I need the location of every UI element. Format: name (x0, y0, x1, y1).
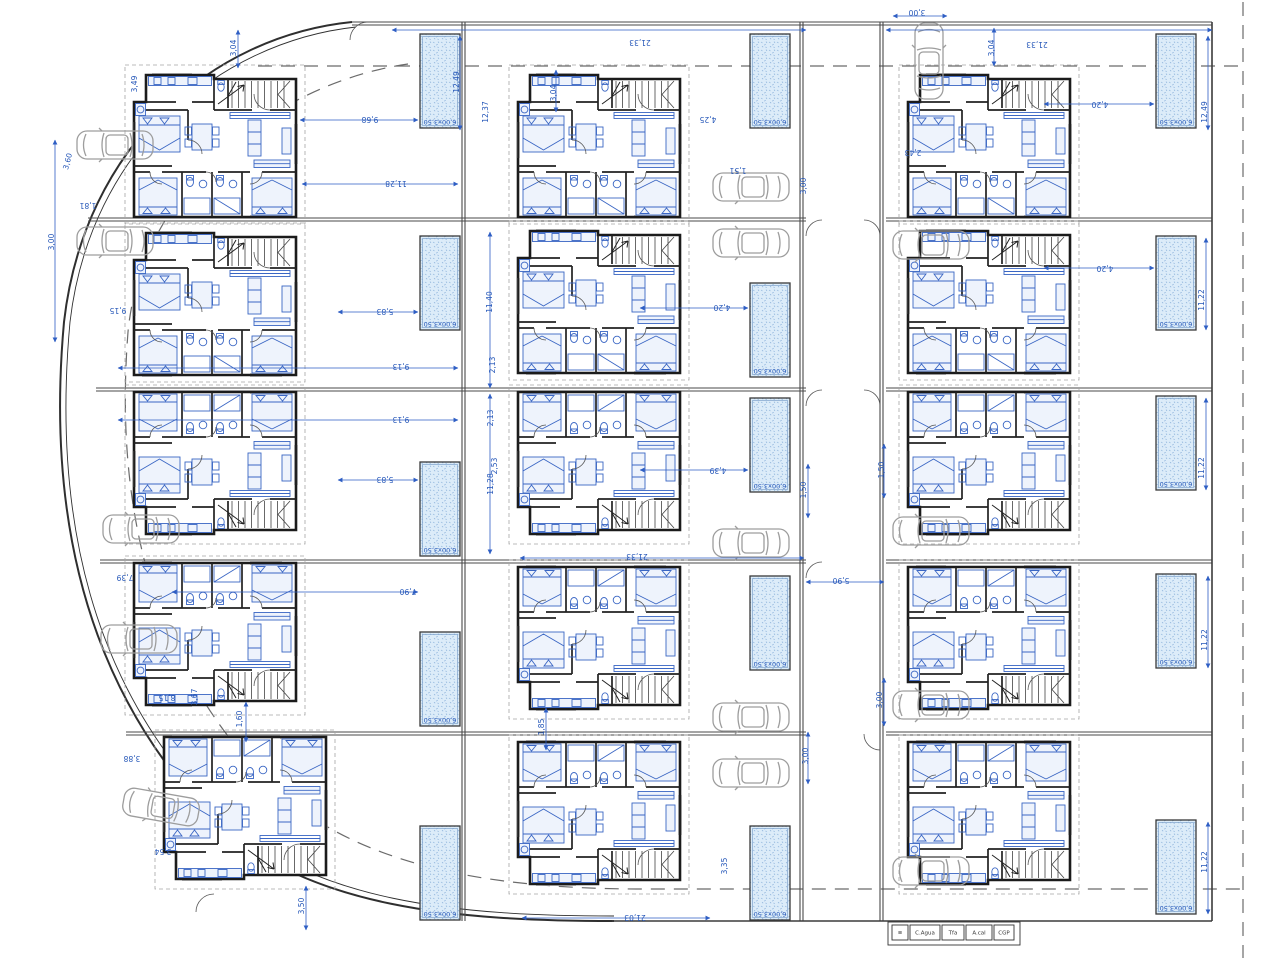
dimension-label: 3,88 (123, 754, 140, 763)
pool-size-label: 6,00x3,50 (1160, 904, 1193, 912)
dimension-label: 2,13 (486, 409, 495, 426)
dimension-label: 21,33 (629, 38, 651, 47)
dimension-label: 3,04 (229, 39, 238, 56)
dimension-label: 11,22 (1197, 457, 1206, 479)
dimension-label: 9,13 (392, 362, 409, 371)
pool-size-label: 6,00x3,50 (754, 482, 787, 490)
pool-size-label: 6,00x3,50 (754, 118, 787, 126)
pool-size-label: 6,00x3,50 (424, 320, 457, 328)
dimension-label: 11,22 (1200, 629, 1209, 651)
dimension-label: 3,54 (154, 847, 171, 856)
legend-label: ≡ (898, 931, 903, 937)
pool (420, 236, 460, 330)
dimension-label: 1,51 (729, 166, 746, 175)
car-icon (713, 700, 789, 734)
dimension-label: 2,13 (488, 356, 497, 373)
villa-floorplan (163, 736, 328, 881)
villa-floorplan (133, 391, 298, 536)
pool (420, 826, 460, 920)
dimension-label: 5,83 (376, 475, 393, 484)
dimension-label: 3,60 (61, 152, 74, 171)
dimension-label: 11,28 (385, 179, 407, 188)
pool-size-label: 6,00x3,50 (1160, 118, 1193, 126)
dimension-label: 3,00 (875, 691, 884, 708)
dimension-label: 1,85 (537, 718, 546, 735)
gate-arc (806, 390, 822, 406)
pool-size-label: 6,00x3,50 (1160, 480, 1193, 488)
dimension-label: 3,49 (130, 75, 139, 92)
dimension-label: 4,20 (713, 303, 730, 312)
villa-floorplan (517, 566, 682, 711)
legend-label: Tfa (948, 931, 958, 937)
legend-label: C.Agua (915, 931, 935, 937)
dimension-label: 11,28 (486, 473, 495, 495)
dimension-label: 3,00 (908, 8, 925, 17)
pool (750, 398, 790, 492)
gate-arc (864, 734, 880, 750)
pool-size-label: 6,00x3,50 (754, 367, 787, 375)
dimension-label: 11,22 (1197, 289, 1206, 311)
dimension-label: 3,00 (801, 747, 810, 764)
dimension-label: 5,90 (832, 576, 849, 585)
car-icon (713, 170, 789, 204)
pool-size-label: 6,00x3,50 (754, 660, 787, 668)
pool (750, 34, 790, 128)
villa-floorplan (133, 562, 298, 707)
dimension-label: 21,33 (626, 552, 648, 561)
gate-arc (864, 220, 880, 236)
site-plan-svg: 6,00x3,506,00x3,506,00x3,506,00x3,506,00… (0, 0, 1280, 960)
villa-floorplan (907, 391, 1072, 536)
dimension-label: 4,20 (1091, 100, 1108, 109)
dimension-label: 9,68 (361, 115, 378, 124)
villa-floorplan (133, 232, 298, 377)
villa-floorplan (517, 230, 682, 375)
blueprint-canvas: 6,00x3,506,00x3,506,00x3,506,00x3,506,00… (0, 0, 1280, 960)
gate-arc (806, 562, 822, 578)
dimension-label: 12,49 (452, 71, 461, 93)
dimension-label: 5,83 (376, 307, 393, 316)
dimension-label: 7,39 (116, 573, 133, 582)
pool (1156, 574, 1196, 668)
dimension-label: 3,04 (987, 39, 996, 56)
dimension-label: 4,39 (709, 466, 726, 475)
pool (1156, 34, 1196, 128)
gate-arc (196, 894, 214, 912)
dimension-label: 8,15 (158, 693, 175, 702)
pool-size-label: 6,00x3,50 (424, 716, 457, 724)
dimension-label: 21,33 (1026, 40, 1048, 49)
dimension-label: 4,20 (1096, 264, 1113, 273)
pool (750, 283, 790, 377)
pool-size-label: 6,00x3,50 (1160, 658, 1193, 666)
gate-arc (806, 220, 822, 236)
villa-floorplan (517, 741, 682, 886)
dimension-label: 9,15 (109, 306, 126, 315)
pool-size-label: 6,00x3,50 (754, 910, 787, 918)
dimension-label: 4,25 (699, 115, 716, 124)
pool (420, 462, 460, 556)
dimension-label: 11,22 (1200, 851, 1209, 873)
dimension-label: 7,90 (399, 587, 416, 596)
legend-label: CGP (998, 931, 1010, 937)
dimension-label: 1,50 (799, 481, 808, 498)
pool (1156, 236, 1196, 330)
dimension-label: 12,37 (481, 101, 490, 123)
pool (750, 576, 790, 670)
legend-label: A.cal (972, 931, 986, 937)
pool (750, 826, 790, 920)
villa-floorplan (907, 230, 1072, 375)
villa-floorplan (517, 391, 682, 536)
pool-size-label: 6,00x3,50 (1160, 320, 1193, 328)
car-icon (713, 226, 789, 260)
dimension-label: 1,81 (79, 201, 96, 210)
pool (1156, 820, 1196, 914)
pool (1156, 396, 1196, 490)
villa-floorplan (907, 741, 1072, 886)
villa-floorplan (133, 74, 298, 219)
gate-arc (864, 390, 880, 406)
villa-floorplan (517, 74, 682, 219)
villa-floorplan (907, 566, 1072, 711)
dimension-label: 3,00 (799, 177, 808, 194)
pool (420, 632, 460, 726)
dimension-label: 9,13 (392, 415, 409, 424)
dimension-label: 11,40 (485, 291, 494, 313)
dimension-label: 2,53 (490, 457, 499, 474)
dimension-label: 1,50 (877, 461, 886, 478)
villa-floorplan (907, 74, 1072, 219)
pool-size-label: 6,00x3,50 (424, 118, 457, 126)
dimension-label: 3,67 (190, 688, 199, 705)
pool-size-label: 6,00x3,50 (424, 546, 457, 554)
dimension-label: 1,60 (235, 710, 244, 727)
dimension-label: 21,03 (624, 913, 646, 922)
dimension-label: 2,43 (904, 148, 921, 157)
pool-size-label: 6,00x3,50 (424, 910, 457, 918)
dimension-label: 3,35 (720, 857, 729, 874)
dimension-label: 3,04 (549, 84, 558, 101)
car-icon (713, 526, 789, 560)
dimension-label: 3,00 (47, 233, 56, 250)
car-icon (713, 756, 789, 790)
dimension-label: 3,50 (297, 897, 306, 914)
dimension-label: 12,49 (1200, 101, 1209, 123)
